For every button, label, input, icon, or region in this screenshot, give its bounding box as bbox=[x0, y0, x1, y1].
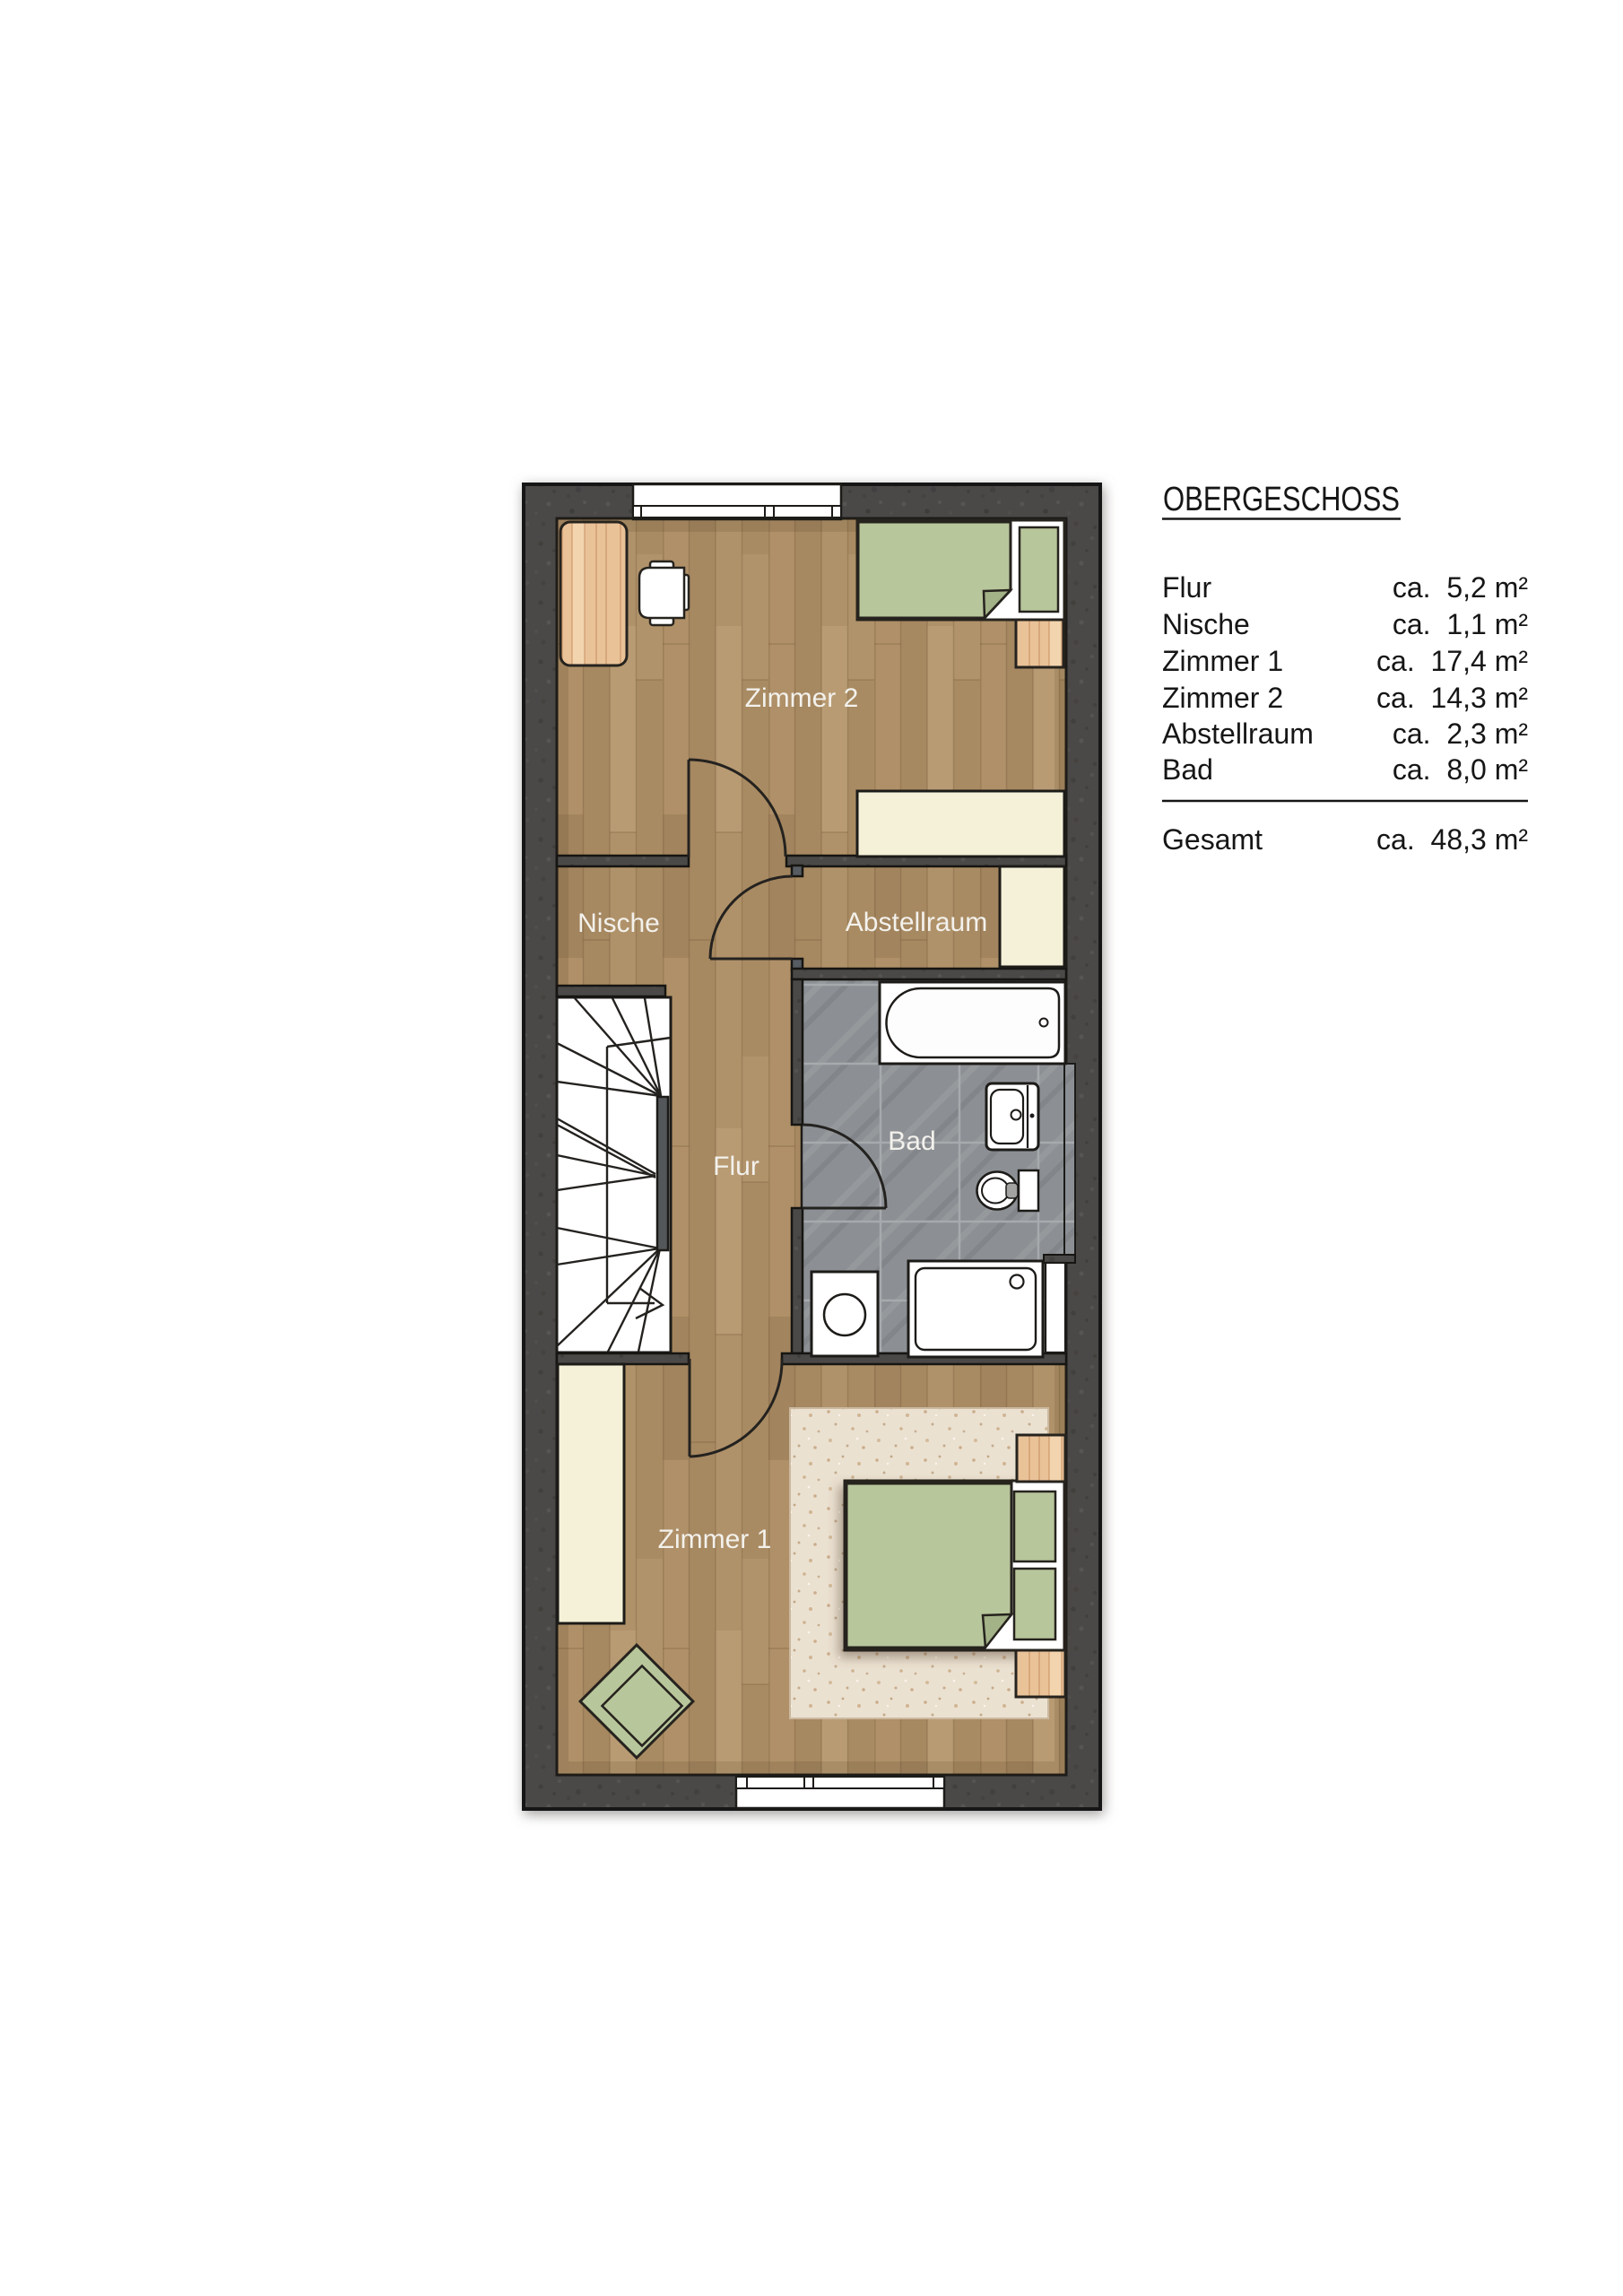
svg-text:ca. 14,3 m²: ca. 14,3 m² bbox=[1376, 682, 1528, 714]
svg-text:ca. 17,4 m²: ca. 17,4 m² bbox=[1376, 645, 1528, 677]
svg-text:Gesamt: Gesamt bbox=[1162, 823, 1263, 856]
svg-text:Nische: Nische bbox=[1162, 608, 1250, 640]
svg-text:ca. 5,2 m²: ca. 5,2 m² bbox=[1393, 571, 1529, 604]
svg-text:OBERGESCHOSS: OBERGESCHOSS bbox=[1163, 481, 1400, 518]
svg-text:ca. 2,3 m²: ca. 2,3 m² bbox=[1393, 717, 1529, 750]
svg-text:Abstellraum: Abstellraum bbox=[846, 908, 987, 937]
svg-text:Flur: Flur bbox=[713, 1152, 759, 1181]
svg-text:Nische: Nische bbox=[577, 909, 660, 938]
svg-text:ca. 8,0 m²: ca. 8,0 m² bbox=[1393, 753, 1529, 786]
svg-text:ca. 1,1 m²: ca. 1,1 m² bbox=[1393, 608, 1529, 640]
svg-text:Bad: Bad bbox=[888, 1126, 935, 1156]
svg-text:Zimmer 2: Zimmer 2 bbox=[1162, 682, 1283, 714]
svg-text:Bad: Bad bbox=[1162, 753, 1213, 786]
svg-text:Abstellraum: Abstellraum bbox=[1162, 717, 1314, 750]
svg-text:ca. 48,3 m²: ca. 48,3 m² bbox=[1376, 823, 1528, 856]
svg-text:Zimmer 2: Zimmer 2 bbox=[745, 683, 859, 713]
svg-text:Zimmer 1: Zimmer 1 bbox=[658, 1525, 772, 1554]
svg-text:Zimmer 1: Zimmer 1 bbox=[1162, 645, 1283, 677]
svg-text:Flur: Flur bbox=[1162, 571, 1211, 604]
